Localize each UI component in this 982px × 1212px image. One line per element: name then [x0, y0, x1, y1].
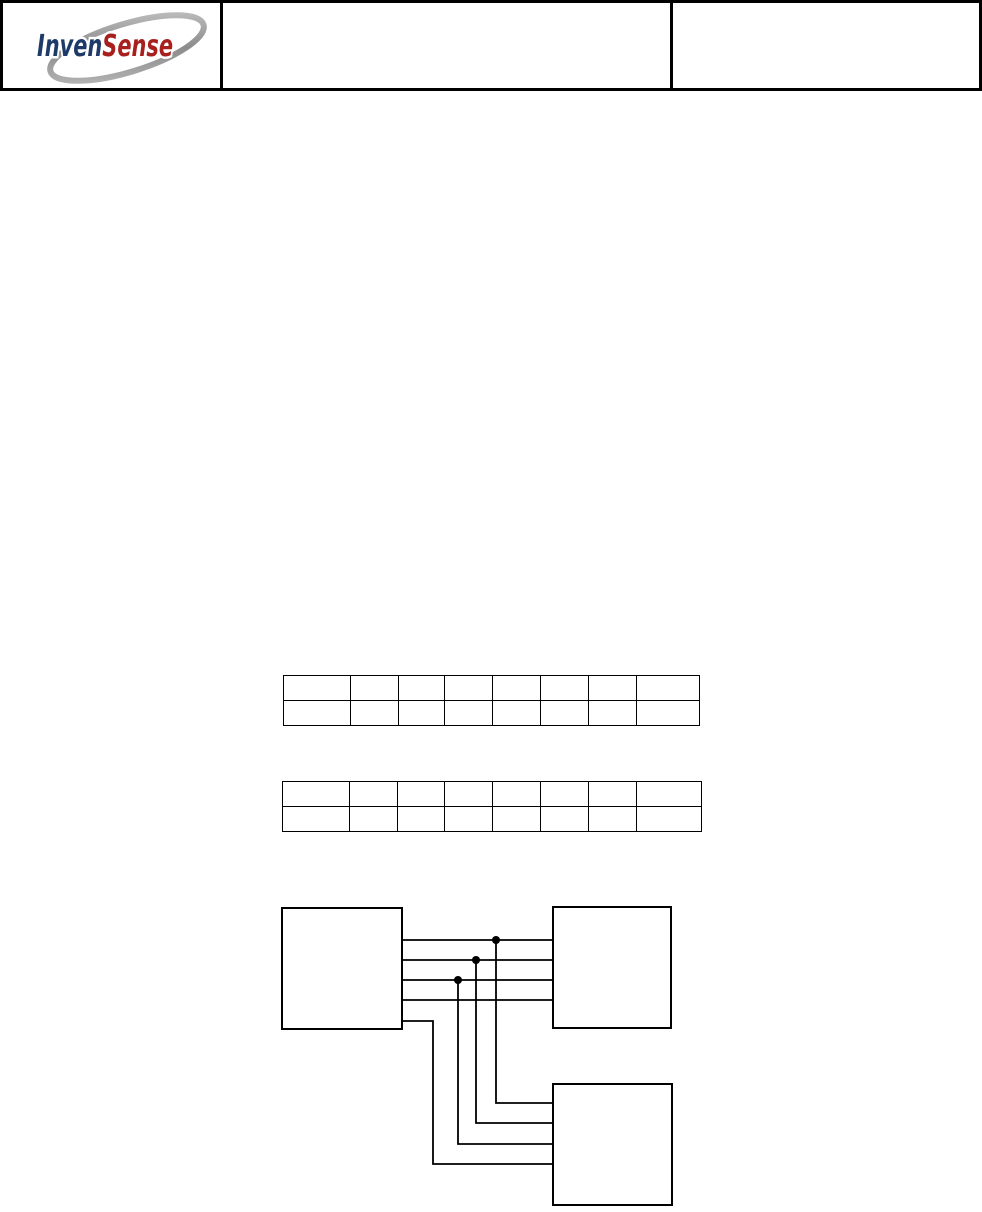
table-cell — [589, 807, 637, 832]
junction-dot-icon — [454, 976, 462, 984]
top-right-box — [553, 907, 671, 1028]
table-cell — [398, 807, 445, 832]
logo-text: InvenSense — [37, 29, 173, 64]
table-cell — [589, 701, 637, 726]
header-info-cell — [673, 3, 979, 88]
table-cell — [445, 701, 493, 726]
table-cell — [541, 807, 589, 832]
table-cell — [589, 676, 637, 701]
header-logo-cell: InvenSense — [3, 3, 223, 88]
table-cell — [493, 807, 541, 832]
table-row — [284, 676, 700, 701]
table-cell — [637, 782, 702, 807]
junction-dot-icon — [492, 936, 500, 944]
table-cell — [541, 701, 589, 726]
branch-wire-2 — [476, 960, 553, 1123]
branch-wire-3 — [458, 980, 553, 1144]
register-table-1 — [283, 675, 700, 726]
register-table-2 — [282, 781, 702, 832]
bottom-right-box — [553, 1084, 672, 1205]
logo-text-inven: Inven — [37, 29, 102, 64]
table-cell — [541, 782, 589, 807]
invensense-logo-svg: InvenSense — [21, 4, 217, 88]
table-cell — [350, 782, 398, 807]
table-cell — [284, 701, 351, 726]
invensense-logo: InvenSense — [21, 4, 217, 88]
table-cell — [284, 676, 351, 701]
header-title-cell — [223, 3, 673, 88]
page-header: InvenSense — [0, 0, 982, 91]
table-row — [283, 782, 702, 807]
table-cell — [445, 782, 493, 807]
table-cell — [637, 676, 700, 701]
bus-connection-diagram — [270, 895, 690, 1207]
table-cell — [351, 676, 399, 701]
table-cell — [637, 701, 700, 726]
table-cell — [589, 782, 637, 807]
left-box — [282, 908, 402, 1029]
table-cell — [637, 807, 702, 832]
table-cell — [445, 676, 493, 701]
table-cell — [541, 676, 589, 701]
table-cell — [399, 701, 445, 726]
bus-wires — [402, 940, 553, 1164]
junction-dot-icon — [472, 956, 480, 964]
branch-wire-1 — [496, 940, 553, 1103]
table-cell — [283, 782, 350, 807]
table-row — [284, 701, 700, 726]
table-row — [283, 807, 702, 832]
table-cell — [398, 782, 445, 807]
table-cell — [493, 676, 541, 701]
logo-text-sense: Sense — [102, 29, 173, 64]
table-cell — [399, 676, 445, 701]
table-cell — [493, 782, 541, 807]
diagram-boxes — [282, 907, 672, 1205]
table-cell — [350, 807, 398, 832]
bus-connection-diagram-svg — [270, 895, 690, 1207]
table-cell — [283, 807, 350, 832]
table-cell — [351, 701, 399, 726]
table-cell — [445, 807, 493, 832]
table-cell — [493, 701, 541, 726]
branch-wire-4 — [402, 1021, 553, 1164]
